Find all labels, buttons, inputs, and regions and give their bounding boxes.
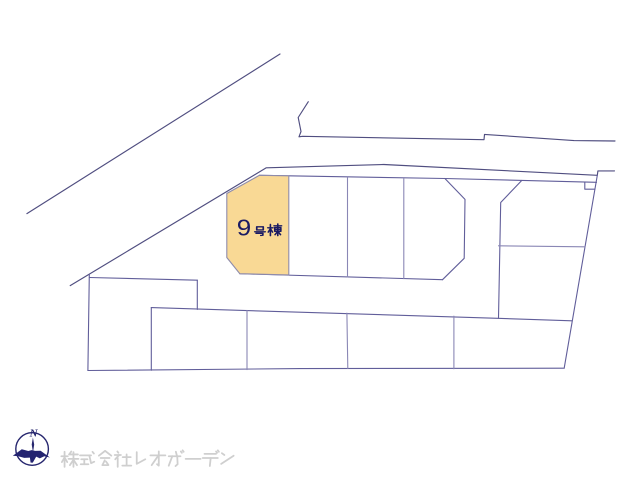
svg-text:9: 9	[237, 216, 251, 241]
svg-text:N: N	[29, 427, 39, 439]
